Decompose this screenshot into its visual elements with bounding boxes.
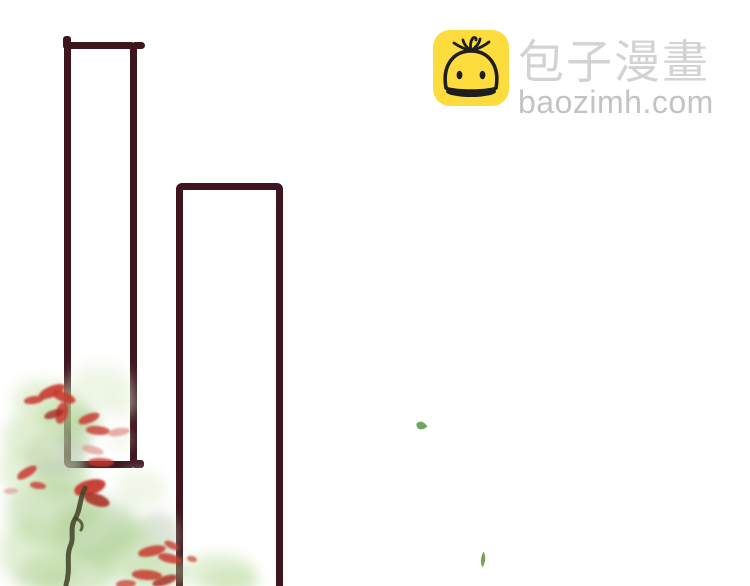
- foliage-blob: [96, 524, 162, 580]
- flower-petal: [4, 488, 18, 494]
- falling-leaf-icon: [415, 420, 429, 432]
- flower-petal: [151, 573, 178, 586]
- branch-stroke: [58, 483, 98, 586]
- flower-petal: [24, 395, 45, 405]
- foliage-blob: [116, 470, 166, 508]
- foliage-blob: [8, 478, 100, 544]
- flower-petal: [29, 480, 46, 490]
- frame-stroke-overshoot-top-left: [63, 36, 71, 49]
- baozimh-watermark: 包子漫畫 baozimh.com: [433, 30, 714, 118]
- frame-stroke-overshoot-top-right: [134, 42, 145, 49]
- foliage-blob: [4, 414, 60, 464]
- flower-petal: [132, 568, 163, 581]
- frame-stroke-overshoot-bottom-right: [134, 460, 144, 468]
- foliage-blob: [16, 560, 74, 586]
- panel-frame-right: [176, 183, 283, 586]
- panel-frame-left: [64, 42, 137, 468]
- foliage-blob: [54, 500, 142, 562]
- foliage-blob: [0, 448, 52, 494]
- falling-leaf-icon: [478, 551, 488, 569]
- flower-petal: [73, 477, 107, 498]
- flower-petal: [137, 544, 166, 559]
- flower-petal: [43, 408, 64, 421]
- site-name: 包子漫畫: [518, 39, 714, 85]
- flower-petal: [37, 382, 67, 402]
- watermark-text: 包子漫畫 baozimh.com: [518, 30, 714, 118]
- comic-page-canvas: 包子漫畫 baozimh.com: [0, 0, 750, 586]
- flower-petal: [15, 463, 39, 481]
- site-domain: baozimh.com: [518, 86, 714, 118]
- foliage-blob: [30, 546, 118, 586]
- baozi-logo-icon: [433, 30, 509, 106]
- flower-petal: [83, 490, 112, 511]
- flower-petal: [116, 580, 136, 586]
- foliage-blob: [0, 522, 66, 584]
- foliage-blob: [138, 512, 180, 558]
